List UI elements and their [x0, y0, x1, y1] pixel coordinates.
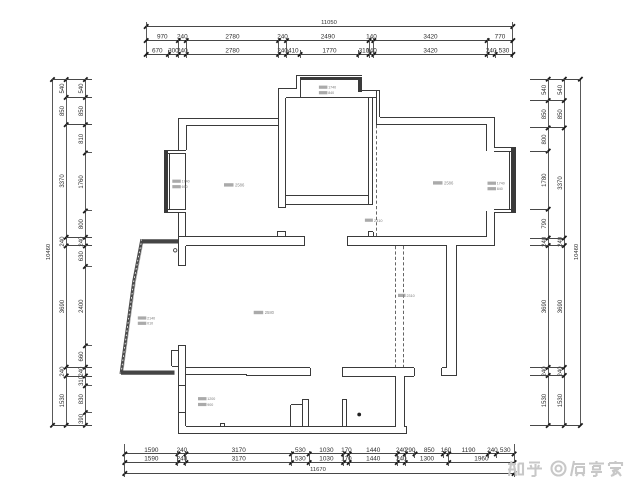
svg-text:1440: 1440	[366, 447, 381, 454]
svg-text:3690: 3690	[558, 299, 564, 313]
svg-text:830: 830	[79, 394, 85, 405]
svg-text:1770: 1770	[322, 47, 337, 54]
svg-text:1740: 1740	[328, 86, 336, 90]
svg-text:850: 850	[542, 109, 548, 120]
svg-text:530: 530	[295, 447, 306, 454]
svg-text:1590: 1590	[144, 456, 159, 463]
svg-text:10460: 10460	[46, 244, 52, 260]
svg-text:670: 670	[152, 47, 163, 54]
svg-text:790: 790	[542, 218, 548, 229]
svg-text:2310: 2310	[407, 294, 415, 298]
svg-text:630: 630	[79, 251, 85, 262]
svg-text:2400: 2400	[79, 299, 85, 313]
svg-text:540: 540	[79, 83, 85, 94]
svg-text:1740: 1740	[182, 180, 190, 184]
svg-text:840: 840	[328, 91, 334, 95]
svg-text:1530: 1530	[60, 393, 66, 407]
svg-text:900: 900	[207, 403, 213, 407]
svg-text:3370: 3370	[60, 174, 66, 188]
svg-text:2586: 2586	[235, 183, 245, 188]
svg-text:3170: 3170	[232, 447, 247, 454]
svg-text:660: 660	[79, 351, 85, 362]
svg-text:2580: 2580	[265, 310, 275, 315]
svg-text:1200: 1200	[207, 397, 215, 401]
svg-text:3690: 3690	[60, 299, 66, 313]
svg-text:1190: 1190	[462, 447, 476, 454]
svg-text:850: 850	[79, 105, 85, 116]
svg-text:850: 850	[60, 105, 66, 116]
svg-text:1960: 1960	[474, 456, 489, 463]
svg-text:850: 850	[558, 109, 564, 120]
svg-text:11670: 11670	[310, 467, 326, 473]
svg-text:970: 970	[157, 34, 168, 41]
svg-text:410: 410	[288, 47, 299, 54]
svg-text:010: 010	[147, 322, 153, 326]
svg-text:850: 850	[424, 447, 435, 454]
svg-text:1760: 1760	[79, 175, 85, 189]
svg-text:810: 810	[79, 133, 85, 144]
svg-text:840: 840	[497, 187, 503, 191]
svg-text:1530: 1530	[558, 393, 564, 407]
svg-text:1030: 1030	[319, 456, 334, 463]
svg-text:1590: 1590	[144, 447, 159, 454]
svg-text:800: 800	[79, 218, 85, 229]
svg-text:530: 530	[295, 456, 306, 463]
svg-text:540: 540	[60, 83, 66, 94]
svg-text:2780: 2780	[225, 47, 240, 54]
svg-text:3420: 3420	[423, 34, 438, 41]
svg-text:3170: 3170	[232, 456, 247, 463]
svg-text:2780: 2780	[225, 34, 240, 41]
svg-text:2310: 2310	[374, 219, 382, 223]
svg-text:540: 540	[542, 84, 548, 95]
svg-text:10460: 10460	[574, 244, 580, 260]
svg-text:800: 800	[542, 134, 548, 145]
svg-text:530: 530	[499, 47, 510, 54]
svg-text:1300: 1300	[420, 456, 435, 463]
svg-text:690: 690	[182, 185, 188, 189]
svg-text:3690: 3690	[542, 299, 548, 313]
svg-text:1030: 1030	[319, 447, 334, 454]
svg-text:1740: 1740	[497, 182, 505, 186]
svg-text:770: 770	[495, 34, 506, 41]
svg-text:1530: 1530	[542, 393, 548, 407]
svg-text:1440: 1440	[366, 456, 381, 463]
svg-text:540: 540	[558, 84, 564, 95]
svg-text:2140: 2140	[147, 316, 155, 320]
svg-text:11050: 11050	[321, 20, 337, 26]
svg-text:530: 530	[500, 447, 511, 454]
svg-text:2586: 2586	[444, 181, 454, 186]
svg-text:3420: 3420	[423, 47, 438, 54]
svg-text:2490: 2490	[321, 34, 336, 41]
svg-text:3370: 3370	[558, 176, 564, 190]
svg-text:1780: 1780	[542, 173, 548, 187]
